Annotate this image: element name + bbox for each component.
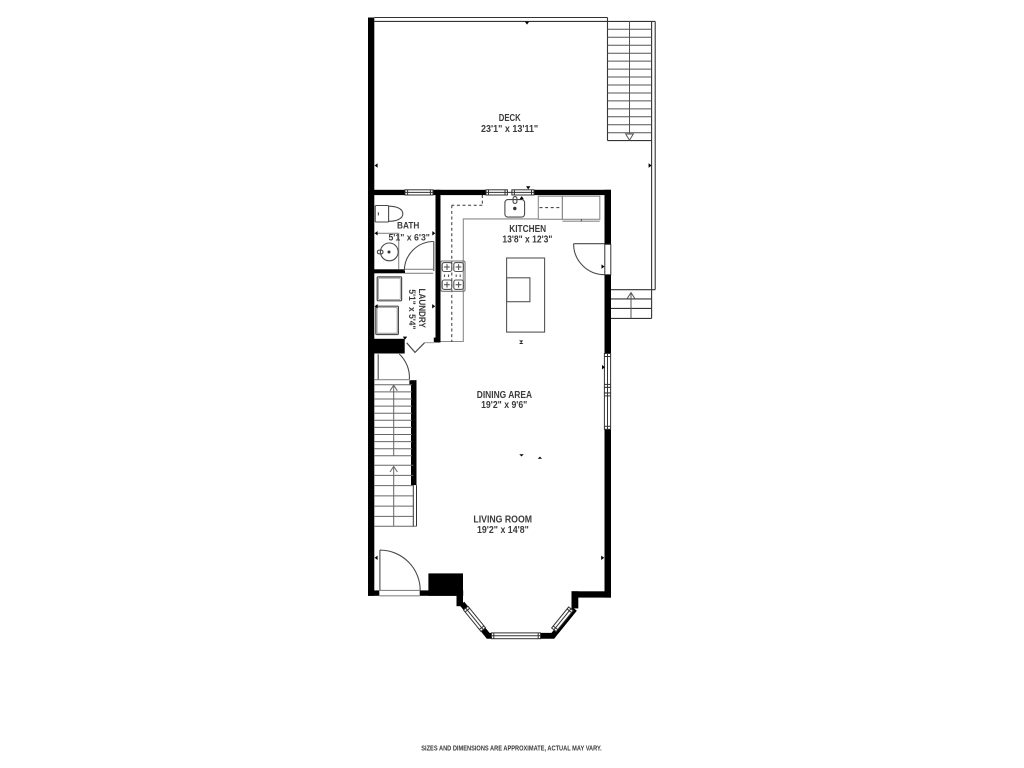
- svg-text:19'2" x 14'8": 19'2" x 14'8": [477, 525, 529, 536]
- svg-text:SIZES AND DIMENSIONS ARE APPRO: SIZES AND DIMENSIONS ARE APPROXIMATE, AC…: [421, 743, 602, 752]
- svg-text:LAUNDRY: LAUNDRY: [417, 289, 427, 328]
- svg-text:19'2" x 9'6": 19'2" x 9'6": [481, 400, 527, 411]
- svg-text:5'1" x 6'3": 5'1" x 6'3": [388, 232, 430, 242]
- svg-text:DECK: DECK: [499, 113, 521, 124]
- svg-text:KITCHEN: KITCHEN: [509, 224, 546, 235]
- svg-text:LIVING ROOM: LIVING ROOM: [473, 514, 532, 525]
- svg-text:BATH: BATH: [397, 221, 419, 231]
- svg-text:5'1" x 5'4": 5'1" x 5'4": [407, 289, 417, 329]
- svg-text:13'8" x 12'3": 13'8" x 12'3": [502, 235, 552, 246]
- svg-text:23'1" x 13'11": 23'1" x 13'11": [481, 124, 538, 135]
